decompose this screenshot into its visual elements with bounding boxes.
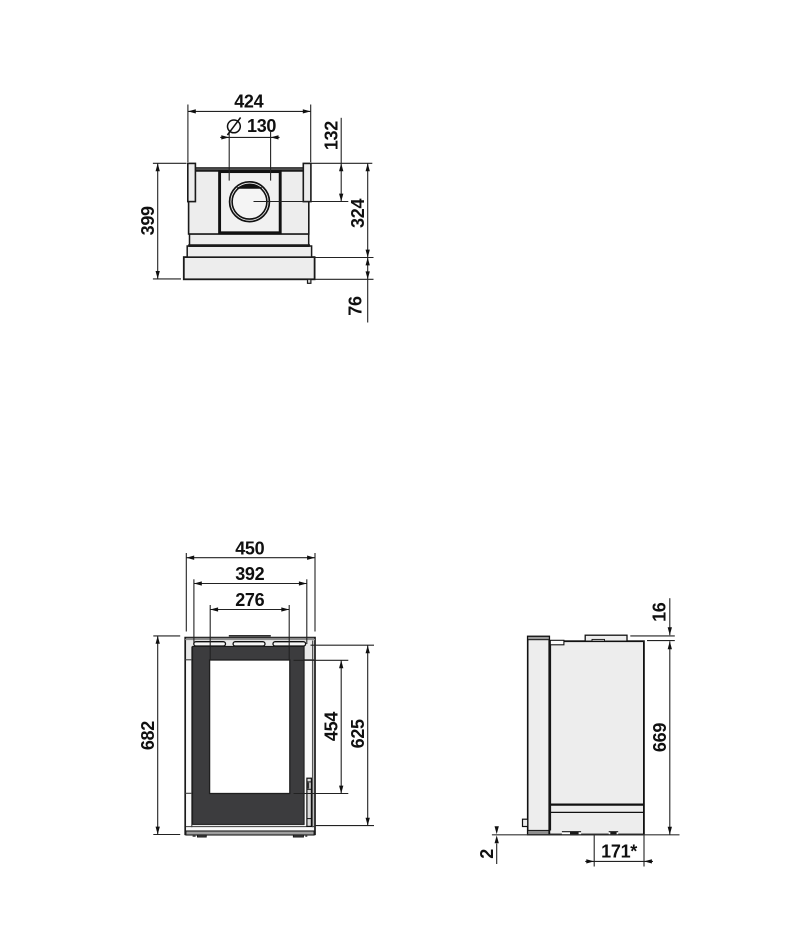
svg-text:450: 450 [235, 538, 264, 558]
svg-text:682: 682 [138, 721, 158, 750]
svg-text:76: 76 [346, 296, 366, 316]
svg-text:454: 454 [322, 712, 342, 741]
svg-text:625: 625 [348, 719, 368, 748]
svg-text:324: 324 [348, 199, 368, 228]
svg-text:276: 276 [235, 590, 264, 610]
svg-text:399: 399 [138, 206, 158, 235]
svg-text:424: 424 [234, 92, 263, 112]
svg-text:130: 130 [247, 116, 276, 136]
svg-text:16: 16 [650, 602, 670, 622]
svg-text:669: 669 [650, 723, 670, 752]
svg-text:2: 2 [477, 849, 497, 859]
svg-text:132: 132 [322, 121, 342, 150]
svg-text:171*: 171* [601, 841, 637, 861]
svg-text:392: 392 [235, 564, 264, 584]
